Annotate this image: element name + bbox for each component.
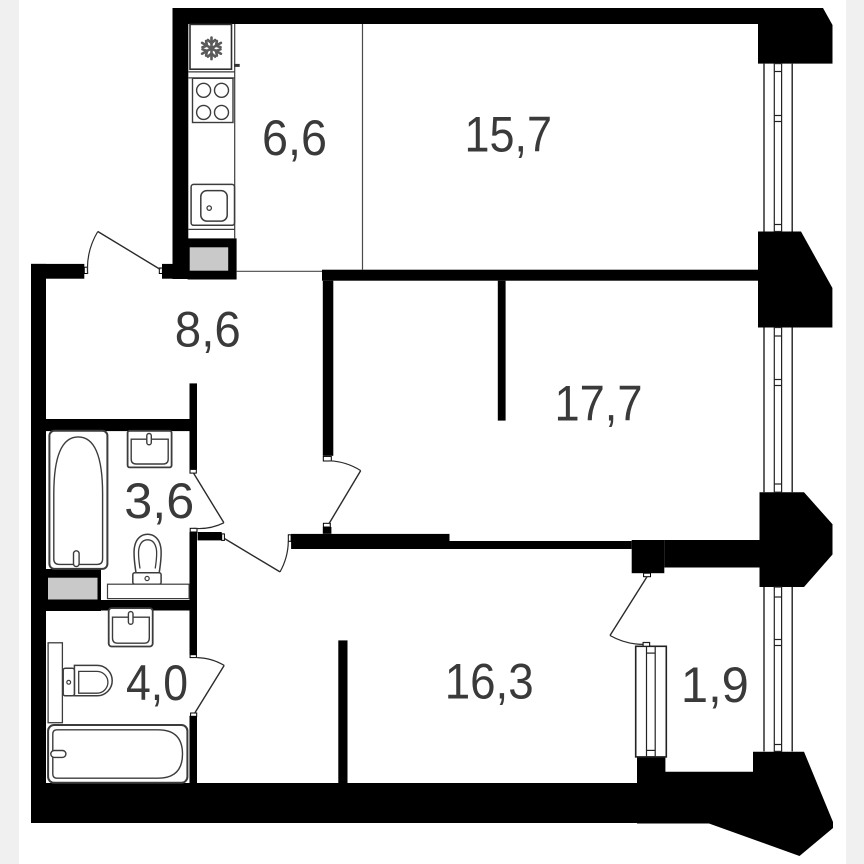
svg-text:3,6: 3,6 (124, 473, 194, 529)
svg-text:15,7: 15,7 (465, 107, 553, 163)
svg-text:17,7: 17,7 (555, 376, 643, 432)
svg-text:4,0: 4,0 (126, 655, 188, 711)
svg-text:16,3: 16,3 (445, 654, 534, 710)
svg-text:8,6: 8,6 (175, 302, 241, 358)
svg-text:6,6: 6,6 (262, 110, 327, 166)
svg-text:1,9: 1,9 (681, 657, 749, 713)
